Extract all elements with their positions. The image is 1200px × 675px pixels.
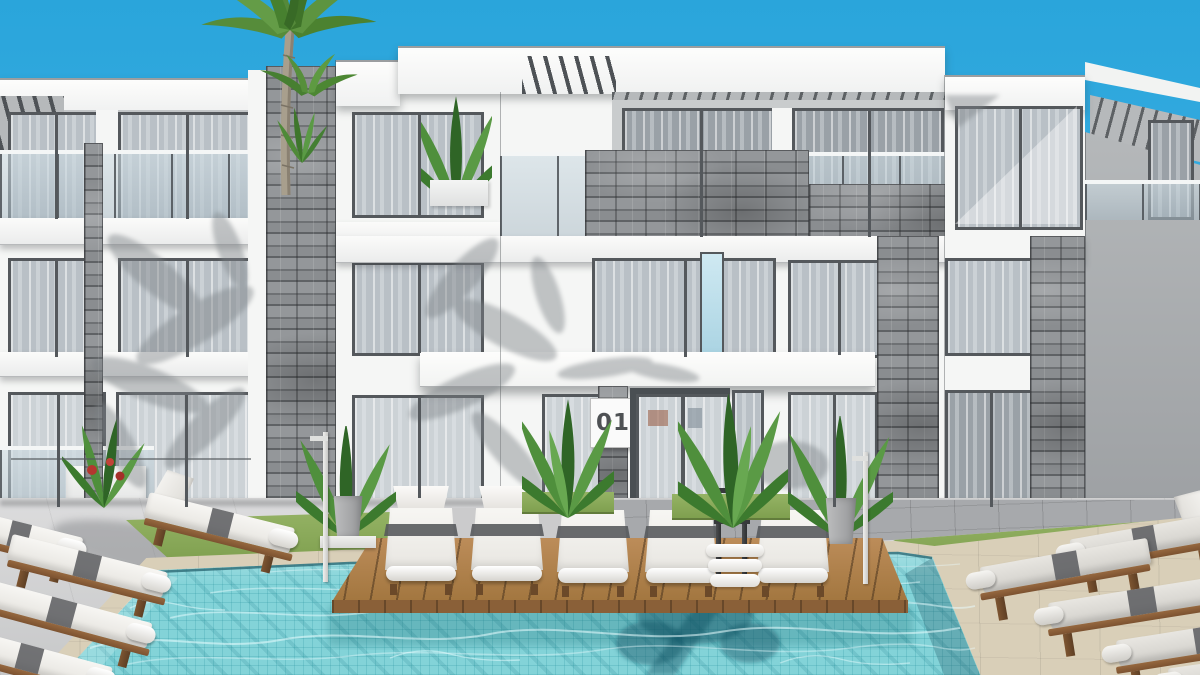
window-mullion: [55, 261, 58, 357]
facade-seam: [500, 92, 501, 515]
window-mullion: [833, 395, 836, 507]
roof-pergola-slats: [522, 56, 616, 94]
lounger-towel-stripe: [384, 524, 458, 536]
folded-towel: [708, 559, 762, 572]
center-f1-window: [352, 395, 484, 501]
facade-seam: [944, 75, 945, 515]
window-mullion: [700, 111, 703, 237]
lounger-leg: [1063, 633, 1075, 657]
lounger-leg: [531, 584, 538, 595]
window-mullion: [418, 115, 421, 215]
lounger-leg: [1131, 670, 1143, 675]
window-mullion: [186, 115, 189, 219]
shower-arm-right: [852, 456, 868, 461]
window-mullion: [990, 393, 993, 507]
right-stone-pier-left: [877, 236, 939, 510]
main-roof-fascia: [398, 46, 945, 94]
far-right-balcony-railing: [1085, 180, 1200, 220]
window-mullion: [186, 261, 189, 357]
center-f2-window: [352, 262, 484, 356]
lounger-towel-stripe: [470, 524, 544, 536]
lounger-towel-stripe: [756, 526, 830, 538]
left-f2-window-2: [118, 258, 254, 360]
lounger-leg: [617, 586, 624, 597]
pot-pedestal: [320, 536, 376, 548]
lounger-cushion: [557, 510, 629, 572]
entrance-bed-right: [672, 494, 790, 520]
lounger-cushion: [385, 508, 457, 570]
folded-towel: [706, 544, 764, 557]
lounger-leg: [445, 584, 452, 595]
lounger-towel-stripe: [556, 526, 630, 538]
door-reflection-red: [648, 410, 668, 426]
left-f3-glass-railing: [0, 150, 258, 222]
window-rail: [11, 458, 103, 460]
rolled-towel: [386, 566, 456, 581]
window-mullion: [57, 395, 60, 507]
lounger-leg: [476, 584, 483, 595]
shower-arm-left: [310, 436, 328, 441]
f2-center-window: [592, 258, 776, 360]
lounger-leg: [261, 555, 274, 574]
lounger-towel-stripe: [644, 526, 718, 538]
window-mullion: [838, 263, 841, 355]
right-stone-pier-right: [1030, 236, 1085, 510]
lounger-leg: [562, 586, 569, 597]
rolled-towel: [758, 568, 828, 583]
door-reflection-gray: [688, 408, 702, 428]
lounger-leg: [817, 586, 824, 597]
towel-stand-bar: [714, 488, 750, 493]
window-mullion: [1019, 109, 1022, 227]
window-mullion: [684, 261, 687, 357]
shower-pole-left: [323, 432, 328, 582]
window-mullion: [418, 265, 421, 353]
lounger-leg: [153, 528, 166, 547]
window-mullion: [418, 398, 421, 498]
f2-right-window: [788, 260, 888, 358]
entrance-bed-left: [522, 492, 614, 514]
right-bay-fascia: [945, 75, 1085, 110]
pool-villa-render: 01: [0, 0, 1200, 675]
shower-pole-right: [863, 452, 868, 584]
window-rail: [119, 458, 251, 460]
entrance-canopy-ledge: [420, 352, 875, 387]
towel-stack: [706, 544, 764, 589]
right-f1-window: [945, 390, 1035, 510]
rolled-towel: [558, 568, 628, 583]
rolled-towel: [472, 566, 542, 581]
lounger-leg: [650, 586, 657, 597]
deck-lounger: [380, 496, 462, 596]
facade-seam: [335, 60, 336, 515]
pool-deck-edge: [332, 600, 908, 613]
stone-column-pilaster: [248, 70, 266, 515]
folded-towel: [710, 574, 760, 587]
right-f2-window: [945, 258, 1035, 356]
unit-number: 01: [596, 410, 630, 436]
balcony-planter-box: [430, 180, 488, 206]
towel-stand-bar: [714, 520, 750, 524]
balcony-stone-parapet-high: [585, 150, 809, 238]
f2-blue-glass-pane: [700, 252, 724, 360]
window-mullion: [868, 111, 871, 237]
lounger-leg: [995, 597, 1008, 621]
window-mullion: [185, 395, 188, 507]
center-bay-fascia: [336, 60, 400, 106]
window-mullion: [55, 115, 58, 219]
lounger-cushion: [471, 508, 543, 570]
lounger-leg: [390, 584, 397, 595]
